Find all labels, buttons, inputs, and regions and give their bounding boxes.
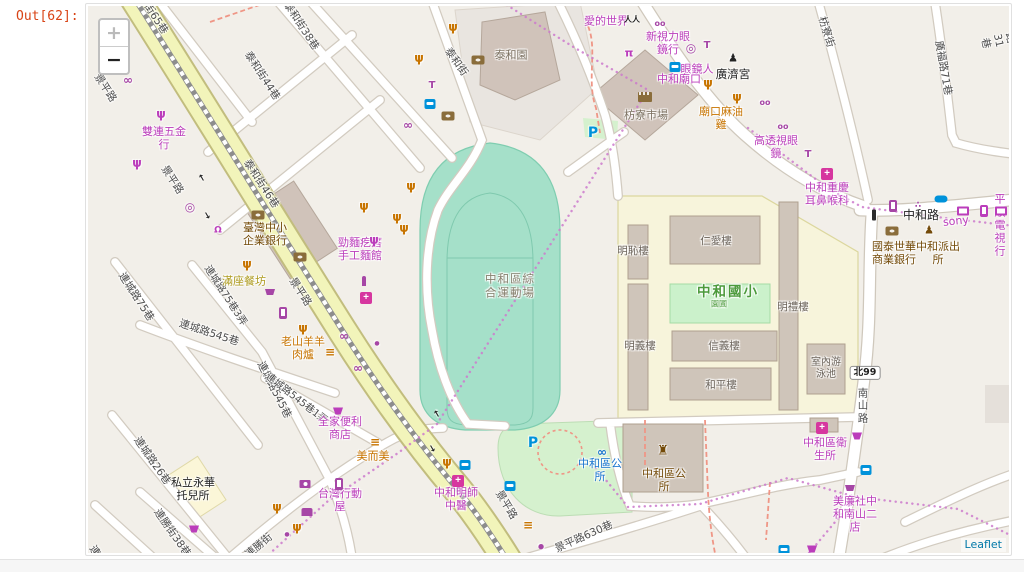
map-canvas xyxy=(88,6,1009,553)
leaflet-attribution: Leaflet xyxy=(961,538,1006,552)
leaflet-link[interactable]: Leaflet xyxy=(965,538,1002,551)
leaflet-map[interactable]: 景平路景平路景平路景平路泰和街65巷泰和街44巷泰和街38巷泰和街46巷泰和街枋… xyxy=(88,6,1009,553)
zoom-in-button[interactable]: + xyxy=(100,20,128,47)
school-courtyard xyxy=(670,284,770,323)
out-prompt: Out[62]: xyxy=(16,9,79,24)
plot-area xyxy=(985,385,1009,423)
zoom-control: + − xyxy=(98,18,130,75)
stadium-area xyxy=(420,143,560,430)
next-cell-area xyxy=(0,559,1024,572)
notebook-page: Out[62]: xyxy=(0,0,1024,572)
zoom-out-button[interactable]: − xyxy=(100,47,128,73)
